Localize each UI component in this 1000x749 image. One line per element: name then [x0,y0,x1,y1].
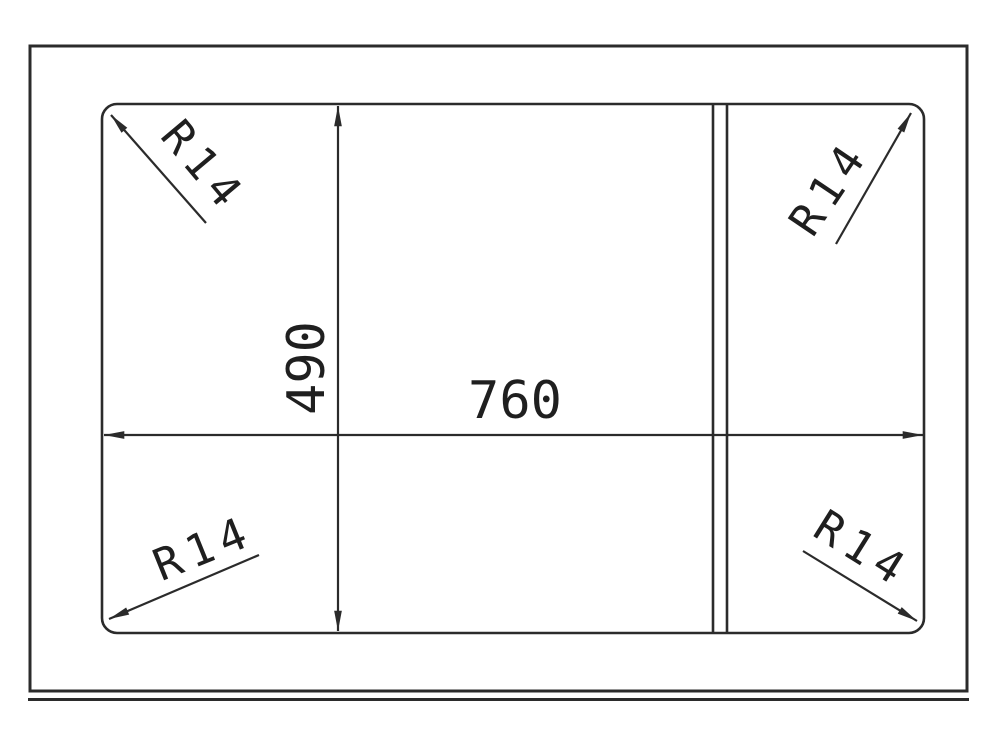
height-dimension-label: 490 [281,321,333,415]
technical-drawing: 760 490 R14 R14 R14 R14 [0,0,1000,749]
width-dimension-label: 760 [468,375,562,427]
